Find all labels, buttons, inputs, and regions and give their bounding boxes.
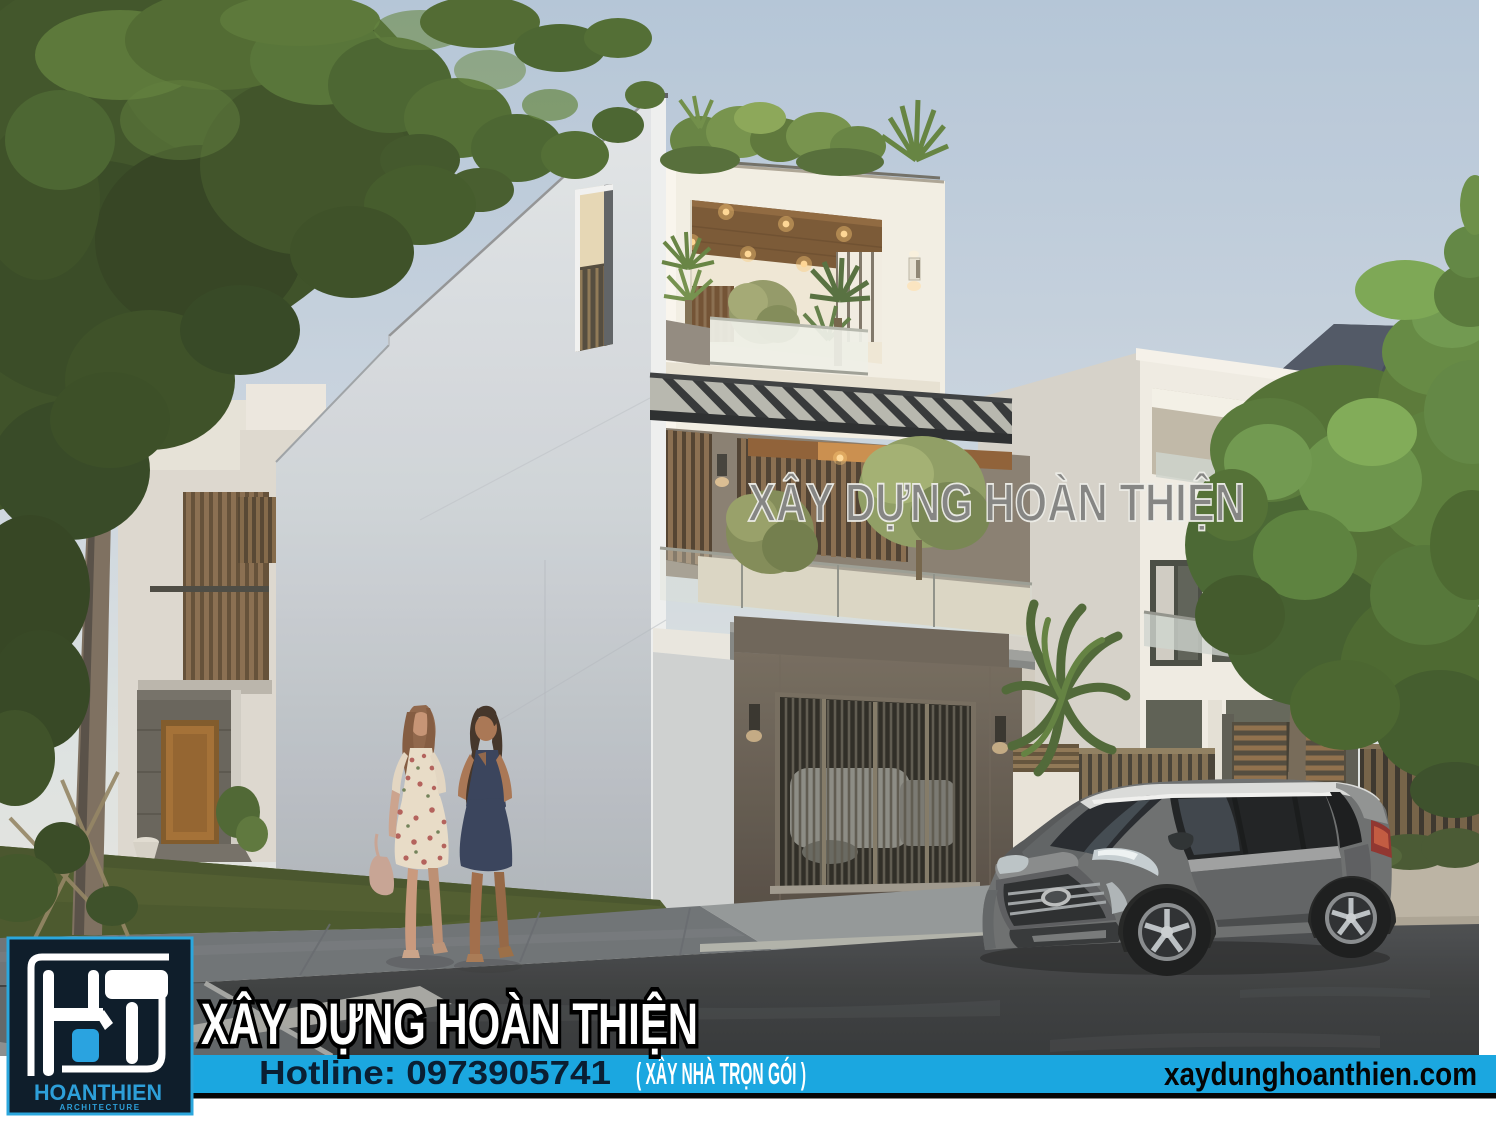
svg-text:HOANTHIEN: HOANTHIEN (34, 1080, 162, 1105)
svg-text:XÂY DỰNG HOÀN THIỆN: XÂY DỰNG HOÀN THIỆN (748, 472, 1245, 533)
svg-text:xaydunghoanthien.com: xaydunghoanthien.com (1164, 1056, 1477, 1092)
svg-text:ARCHITECTURE: ARCHITECTURE (59, 1103, 140, 1112)
svg-text:Hotline: 0973905741: Hotline: 0973905741 (259, 1054, 611, 1091)
svg-text:( XÂY NHÀ TRỌN GÓI ): ( XÂY NHÀ TRỌN GÓI ) (636, 1055, 806, 1091)
